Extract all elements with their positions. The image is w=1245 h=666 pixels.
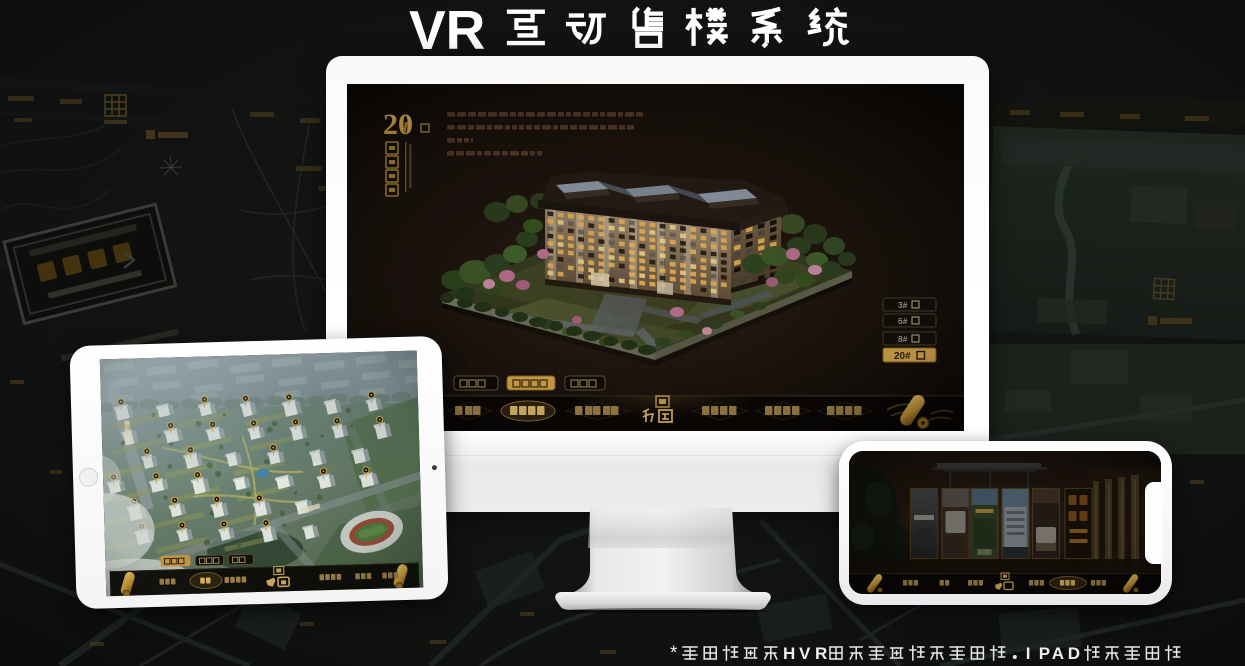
svg-text:VR: VR [409,0,485,60]
